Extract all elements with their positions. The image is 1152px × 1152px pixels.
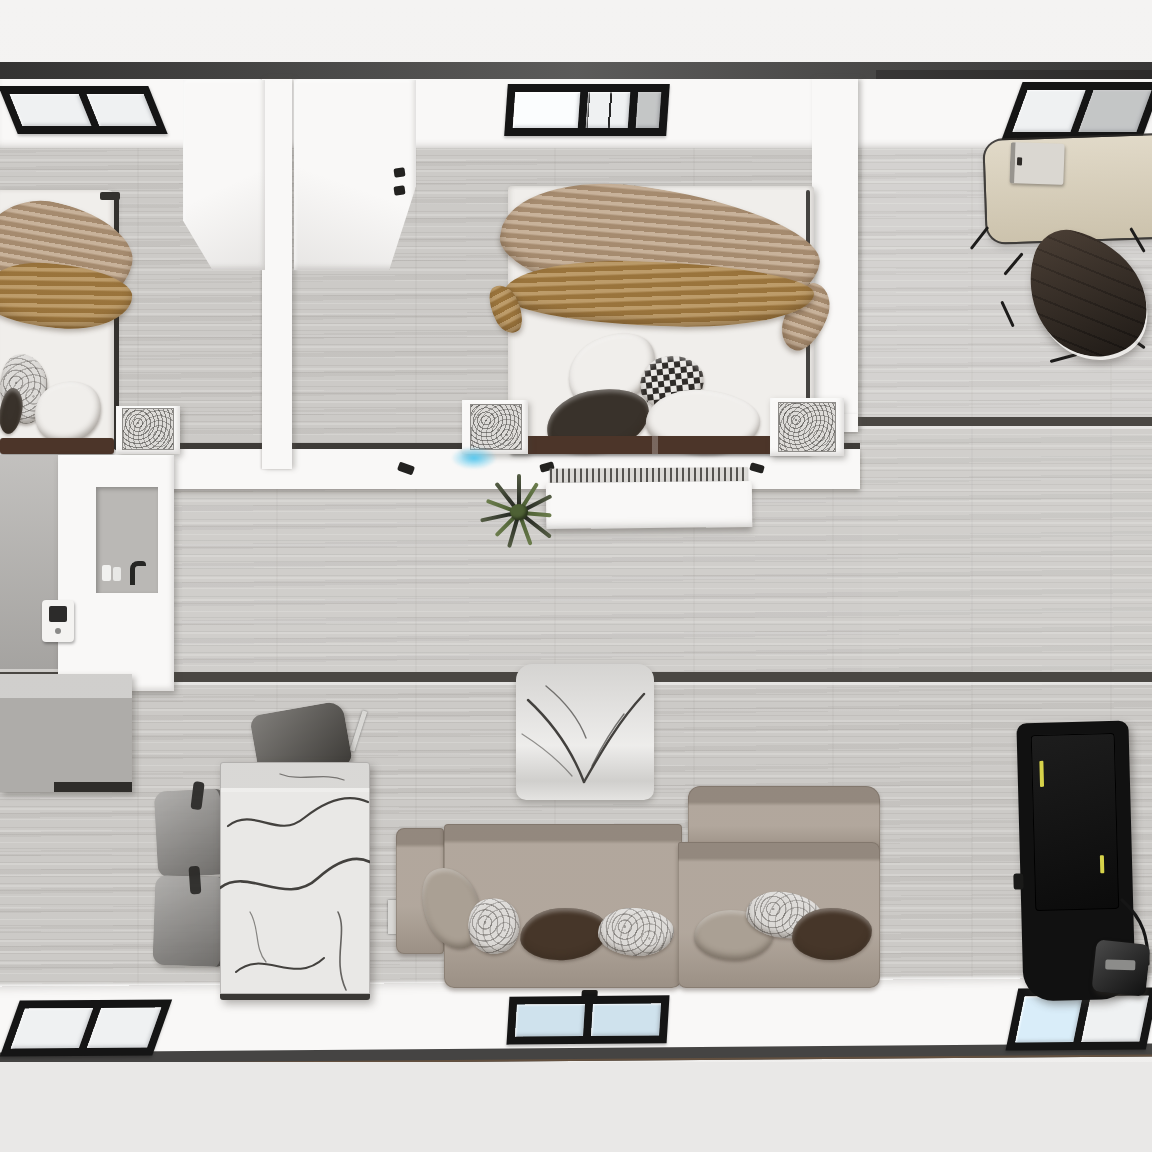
- bed-left-headboard: [0, 438, 114, 454]
- wardrobe-handle: [393, 185, 405, 195]
- decor-box: [778, 402, 836, 452]
- window-pane: [591, 1003, 661, 1036]
- dining-chair-smoke: [154, 788, 230, 878]
- dining-chair-smoke: [152, 875, 229, 968]
- window-latch: [581, 990, 598, 1004]
- tv-bracket-clip: [1105, 959, 1135, 970]
- bed-left-rail-bracket: [100, 192, 120, 200]
- partition-window-cutout: [96, 487, 158, 593]
- window-top-left: [0, 86, 168, 134]
- chair-stem: [188, 866, 201, 895]
- window-pane: [1012, 90, 1085, 132]
- window-pane: [87, 1007, 161, 1047]
- window-top-center: [504, 84, 670, 136]
- bedroom-divider-wall: [262, 79, 292, 469]
- scene-title: Top-down 3D render of a modular home flo…: [0, 0, 1, 1]
- window-pane: [515, 1004, 585, 1037]
- tv-label-mark: [1100, 855, 1104, 873]
- faucet: [130, 561, 146, 585]
- dining-table-veins: [220, 762, 370, 1000]
- window-pane: [11, 1008, 94, 1049]
- plant-center: [510, 504, 528, 520]
- floorplan-render: Top-down 3D render of a modular home flo…: [0, 0, 1152, 1152]
- kitchen-base-cabinet: [0, 674, 132, 792]
- floor-seam-right-highlight: [858, 426, 1152, 429]
- open-floor-tint: [862, 428, 1152, 672]
- thermostat: [42, 600, 74, 642]
- window-pane: [1015, 996, 1083, 1042]
- window-bottom-center: [506, 995, 669, 1044]
- decor-box: [122, 408, 174, 450]
- nightstand: [116, 406, 180, 454]
- exterior-ground: [0, 1062, 1152, 1152]
- window-pane: [513, 92, 581, 128]
- window-bottom-left: [0, 999, 172, 1056]
- floor-seam-right: [858, 417, 1152, 426]
- bed-center-headboard: [510, 436, 812, 454]
- tv-side-knob: [1013, 873, 1023, 889]
- window-pane: [586, 92, 630, 128]
- chair-stem: [190, 781, 204, 810]
- window-pane: [1081, 996, 1149, 1042]
- window-pane: [1078, 90, 1151, 132]
- console-front: [546, 481, 752, 529]
- window-pane: [86, 94, 156, 126]
- window-top-right: [1001, 82, 1152, 140]
- tv-label-mark: [1039, 761, 1044, 787]
- sink-bottle: [102, 565, 111, 581]
- tv-floor-bracket: [1091, 939, 1150, 996]
- nightstand: [770, 398, 844, 456]
- tv-screen: [1031, 733, 1120, 911]
- thermostat-button: [55, 628, 61, 634]
- window-pane: [636, 92, 662, 128]
- thermostat-screen: [49, 606, 67, 622]
- sink-bottle: [113, 567, 121, 581]
- cabinet-kick-shadow: [54, 782, 132, 792]
- hallway-console: [546, 465, 753, 529]
- bathroom-partition: [58, 455, 174, 691]
- laptop-hinge-dot: [1017, 157, 1022, 165]
- wardrobe-handle: [393, 167, 405, 177]
- wardrobe-right: [294, 80, 416, 270]
- window-pane: [10, 94, 92, 126]
- accent-chair-veins: [516, 664, 654, 800]
- sofa-section-right-back: [688, 786, 880, 850]
- laptop: [1009, 142, 1064, 185]
- potted-plant: [476, 464, 564, 558]
